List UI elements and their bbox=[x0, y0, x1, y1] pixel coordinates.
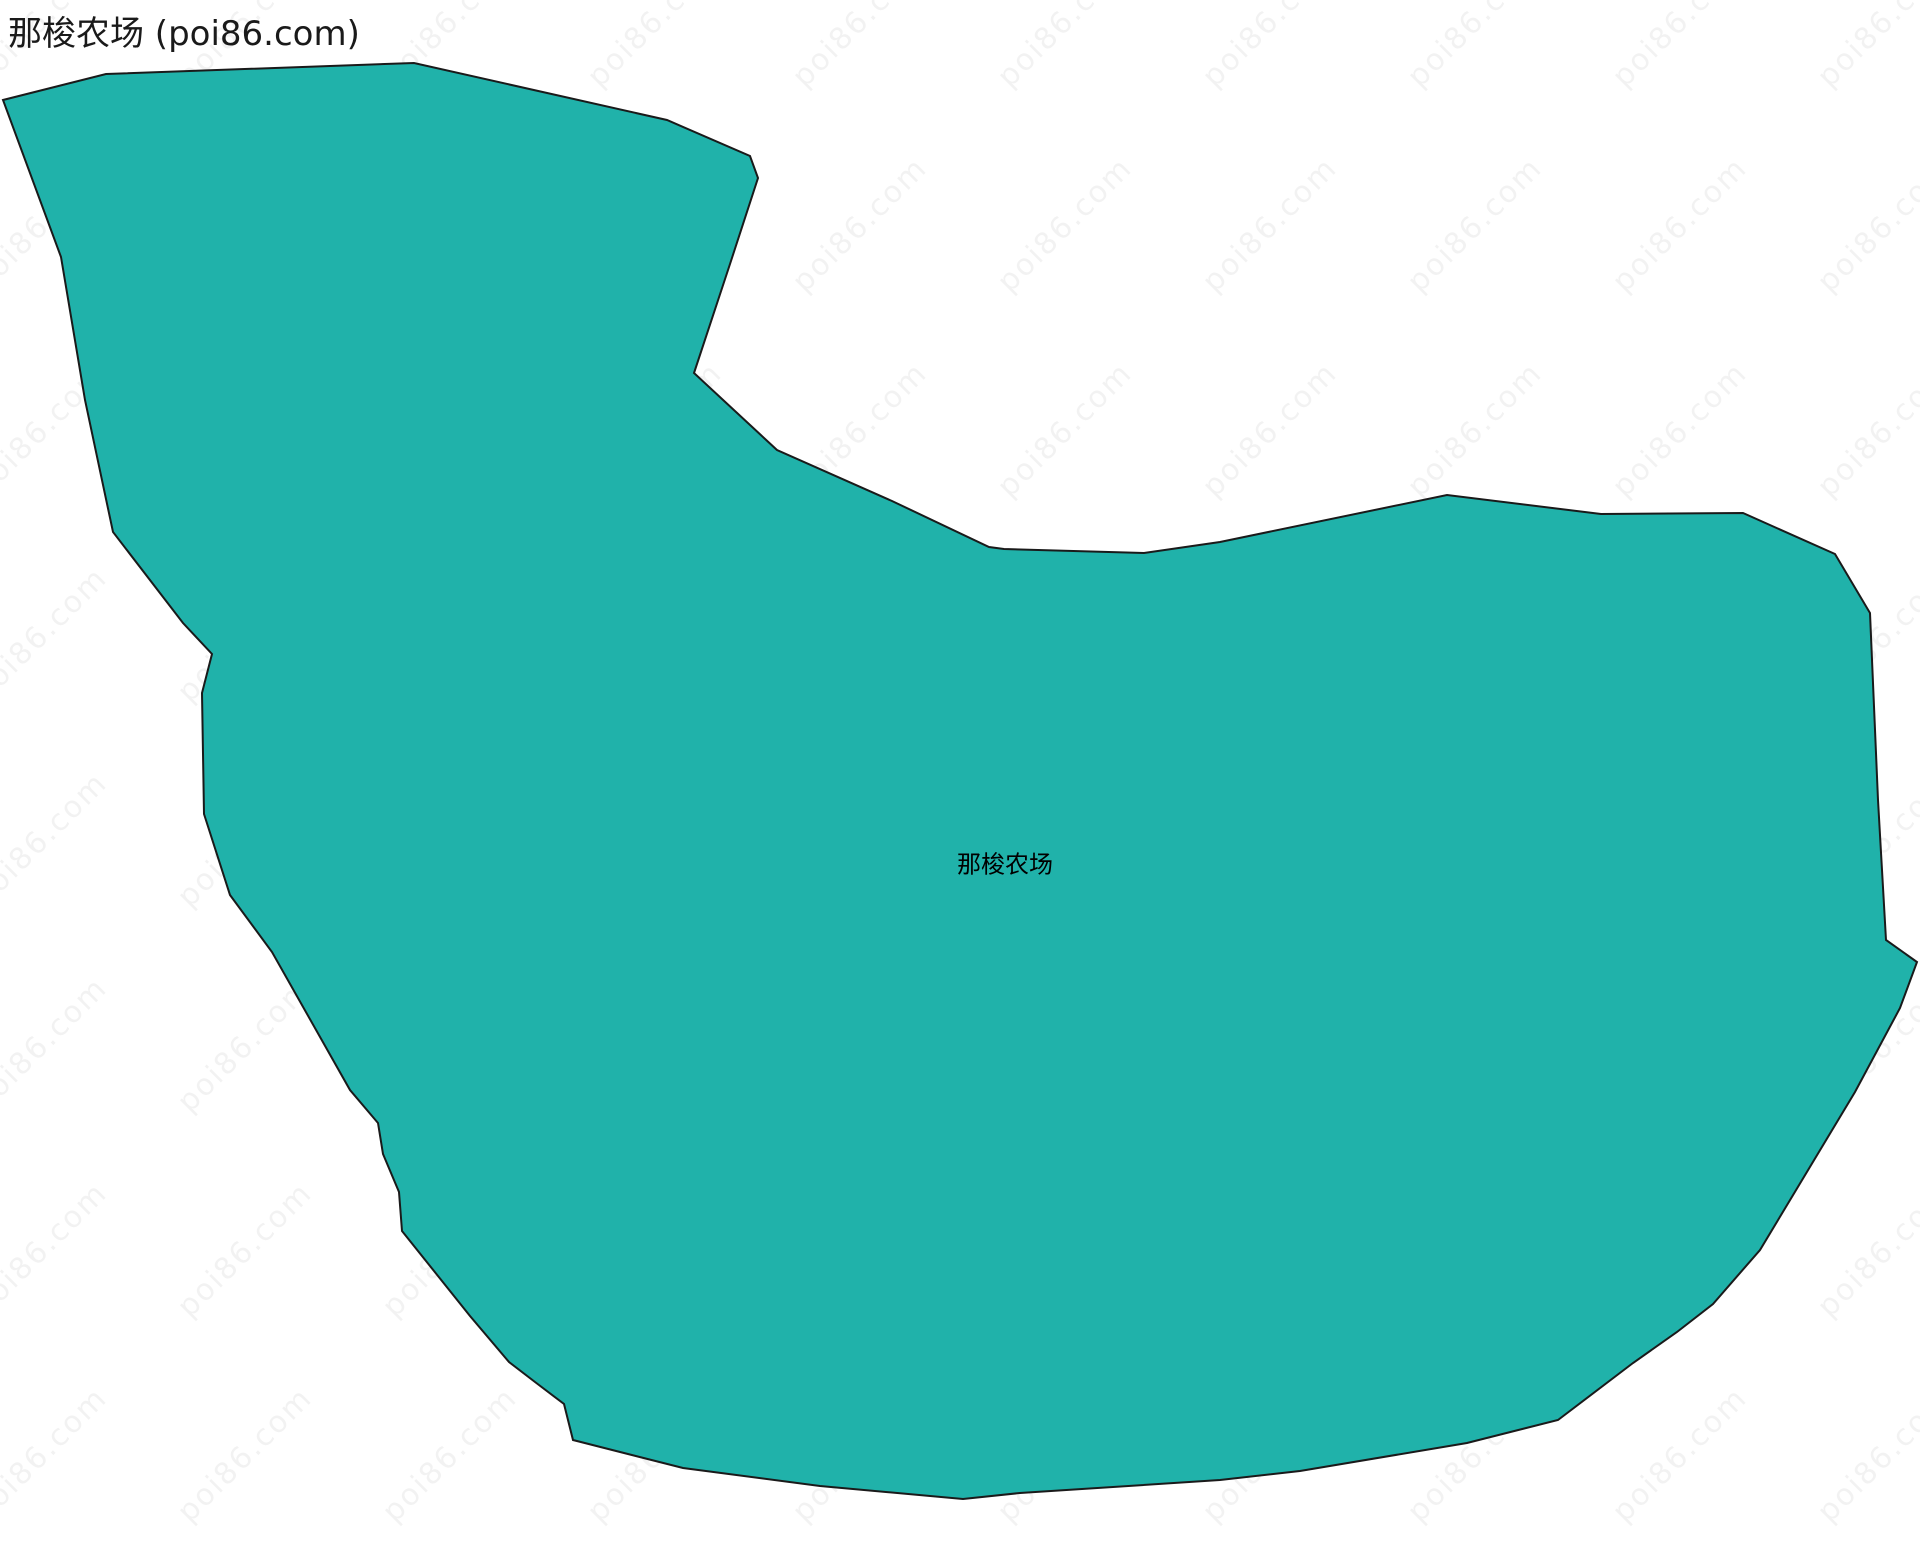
region-map-canvas bbox=[0, 0, 1920, 1563]
map-viewport: poi86.compoi86.compoi86.compoi86.compoi8… bbox=[0, 0, 1920, 1563]
region-label: 那梭农场 bbox=[957, 845, 1053, 880]
page-title: 那梭农场 (poi86.com) bbox=[8, 6, 360, 55]
region-boundary-polygon bbox=[3, 63, 1917, 1499]
